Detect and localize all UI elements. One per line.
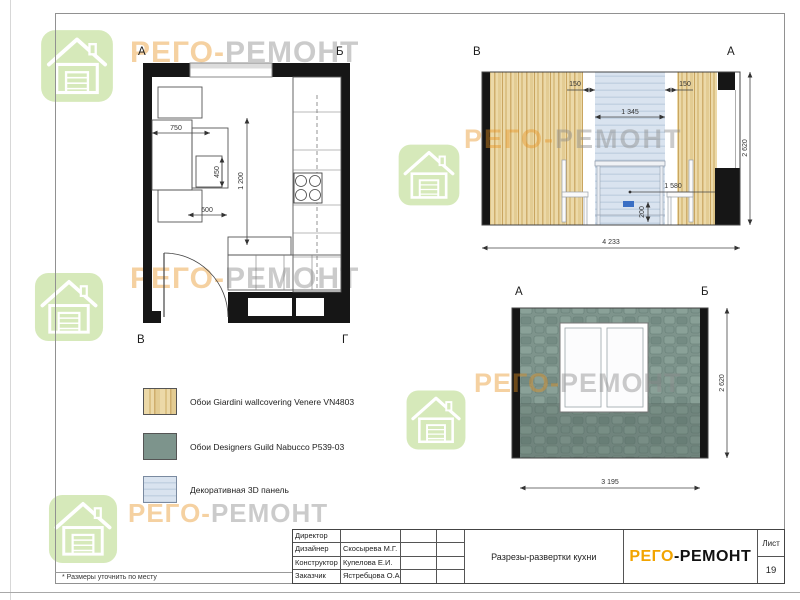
company-logo: РЕГО-РЕМОНТ — [624, 530, 759, 583]
dim-200: 200 — [639, 206, 646, 218]
plan-door — [164, 253, 228, 317]
plan-dining-furniture — [152, 87, 228, 222]
elevation-corner-a: А — [727, 46, 735, 58]
dim-750: 750 — [170, 125, 182, 132]
3d-panel-swatch — [143, 476, 177, 503]
dim-1200: 1 200 — [238, 172, 245, 190]
watermark-brand: РЕГО-РЕМОНТ — [474, 368, 681, 399]
footnote: * Размеры уточнить по месту — [62, 574, 157, 581]
role-name: Купелова Е.И. — [341, 557, 401, 570]
legend-item: Обои Designers Guild Nabucco P539-03 — [143, 433, 344, 460]
legend-label: Обои Designers Guild Nabucco P539-03 — [190, 442, 344, 452]
plan-bottom-counter — [228, 237, 341, 290]
plan-corner-a: А — [138, 46, 146, 58]
plan-dimensions: 750 1 200 450 600 — [152, 118, 247, 245]
date-cell — [437, 543, 465, 556]
role-name: Ястребцова О.А. — [341, 570, 401, 583]
elevation-corner-b: Б — [701, 286, 709, 298]
dim-3195: 3 195 — [601, 479, 619, 486]
dim-1345: 1 345 — [621, 109, 639, 116]
socket-marker — [623, 201, 634, 207]
plan-window — [190, 63, 272, 77]
role-name: Скосырева М.Г. — [341, 543, 401, 556]
role-label: Дизайнер — [293, 543, 341, 556]
dim-450: 450 — [214, 166, 221, 178]
logo-house-icon — [396, 138, 462, 212]
floor-plan: А Б В Г — [130, 33, 365, 351]
signature-cell — [401, 557, 437, 570]
sheet-number: 19 — [758, 557, 784, 583]
wood-wallcovering — [677, 72, 717, 225]
logo-house-icon — [32, 270, 106, 344]
logo-black-part: -РЕМОНТ — [674, 548, 751, 566]
drawing-title: Разрезы-развертки кухни — [465, 530, 624, 583]
date-cell — [437, 557, 465, 570]
title-block: Директор Дизайнер Скосырева М.Г. Констру… — [292, 529, 785, 584]
title-block-signatures: Директор Дизайнер Скосырева М.Г. Констру… — [293, 530, 465, 583]
legend-label: Обои Giardini wallcovering Venere VN4803 — [190, 397, 354, 407]
elevation-corner-a: А — [515, 286, 523, 298]
dim-4233: 4 233 — [602, 239, 620, 246]
legend-item: Декоративная 3D панель — [143, 476, 289, 503]
teal-swatch — [143, 433, 177, 460]
dim-1580: 1 580 — [664, 183, 682, 190]
dim-2620: 2 620 — [719, 374, 726, 392]
plan-corner-g: Г — [342, 334, 349, 346]
signature-cell — [401, 570, 437, 583]
elevation-corner-v: В — [473, 46, 481, 58]
role-label: Заказчик — [293, 570, 341, 583]
date-cell — [437, 570, 465, 583]
date-cell — [437, 530, 465, 543]
role-name — [341, 530, 401, 543]
dim-600: 600 — [201, 207, 213, 214]
logo-house-icon — [38, 27, 116, 105]
page-bottom-line — [0, 592, 800, 593]
plan-hob — [294, 173, 322, 203]
legend-label: Декоративная 3D панель — [190, 485, 289, 495]
dim-2620: 2 620 — [742, 139, 749, 157]
drawing-sheet: РЕГО-РЕМОНТ РЕГО-РЕМОНТ РЕГО-РЕМОНТ РЕГО… — [0, 0, 800, 600]
page-edge-line — [10, 0, 11, 600]
logo-orange-part: РЕГО — [629, 548, 674, 566]
sheet-label: Лист — [758, 530, 784, 557]
plan-corner-v: В — [137, 334, 145, 346]
signature-cell — [401, 543, 437, 556]
watermark-brand: РЕГО-РЕМОНТ — [464, 124, 682, 155]
plan-corner-b: Б — [336, 46, 344, 58]
footnote-separator — [55, 572, 292, 573]
logo-house-icon — [46, 492, 120, 566]
dim-150-left: 150 — [569, 81, 581, 88]
sheet-column: Лист 19 — [758, 530, 784, 583]
signature-cell — [401, 530, 437, 543]
role-label: Директор — [293, 530, 341, 543]
plan-wall-niches — [248, 298, 324, 316]
role-label: Конструктор — [293, 557, 341, 570]
legend-item: Обои Giardini wallcovering Venere VN4803 — [143, 388, 354, 415]
wood-swatch — [143, 388, 177, 415]
dim-150-right: 150 — [679, 81, 691, 88]
